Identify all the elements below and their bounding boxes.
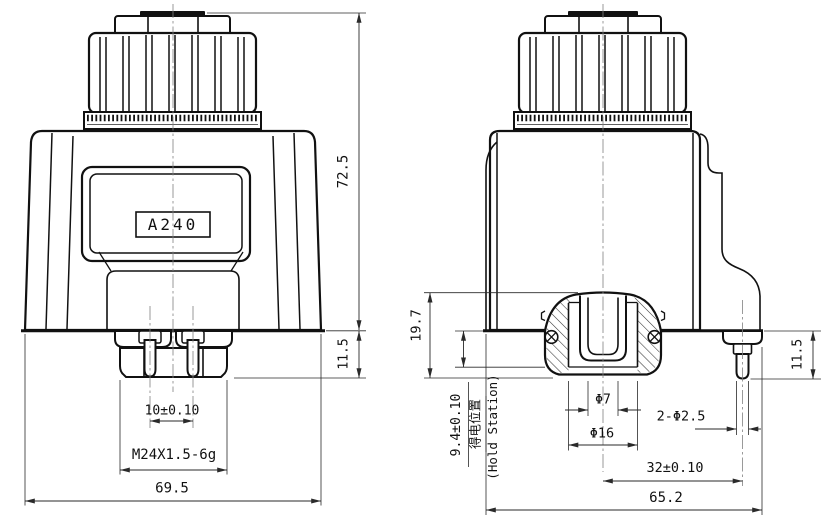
svg-text:65.2: 65.2 bbox=[649, 490, 683, 506]
svg-text:19.7: 19.7 bbox=[409, 309, 425, 342]
front-knurled-knob bbox=[89, 33, 256, 113]
dim-thread-spec: M24X1.5-6g bbox=[120, 380, 227, 475]
svg-text:11.5: 11.5 bbox=[337, 338, 352, 369]
side-knurled-knob bbox=[519, 33, 686, 113]
svg-text:Φ7: Φ7 bbox=[595, 393, 611, 408]
front-serrated-ring bbox=[84, 112, 261, 129]
drawing-canvas: A240 10±0.10 M24X1.5-6g bbox=[0, 0, 829, 527]
svg-text:32±0.10: 32±0.10 bbox=[647, 460, 704, 476]
o-ring-right bbox=[648, 331, 661, 344]
svg-text:72.5: 72.5 bbox=[336, 155, 352, 189]
o-ring-left bbox=[545, 331, 558, 344]
dim-nut-height: 11.5 bbox=[234, 331, 366, 378]
hold-label-en: (Hold Station) bbox=[485, 374, 500, 479]
dim-pin-offset: 32±0.10 bbox=[603, 460, 743, 481]
hold-label-cn: 得电位置 bbox=[468, 399, 483, 449]
dim-hold-position: 9.4±0.10 得电位置 (Hold Station) bbox=[449, 331, 545, 480]
dim-pin-holes: 2-Φ2.5 bbox=[657, 381, 761, 435]
side-view bbox=[483, 4, 763, 486]
svg-text:10±0.10: 10±0.10 bbox=[145, 404, 200, 419]
svg-text:2-Φ2.5: 2-Φ2.5 bbox=[657, 409, 706, 425]
front-view: A240 bbox=[21, 4, 325, 428]
front-terminal-block bbox=[115, 331, 232, 377]
side-serrated-ring bbox=[514, 112, 691, 129]
svg-text:9.4±0.10: 9.4±0.10 bbox=[449, 394, 464, 457]
svg-text:69.5: 69.5 bbox=[155, 481, 189, 497]
svg-text:11.5: 11.5 bbox=[791, 339, 806, 370]
technical-drawing: A240 10±0.10 M24X1.5-6g bbox=[0, 0, 829, 527]
dim-pin-spacing: 10±0.10 bbox=[145, 404, 200, 422]
svg-text:Φ16: Φ16 bbox=[590, 426, 614, 442]
svg-text:M24X1.5-6g: M24X1.5-6g bbox=[132, 447, 216, 463]
front-hex-nut bbox=[120, 348, 227, 377]
side-right-bracket bbox=[700, 134, 760, 330]
